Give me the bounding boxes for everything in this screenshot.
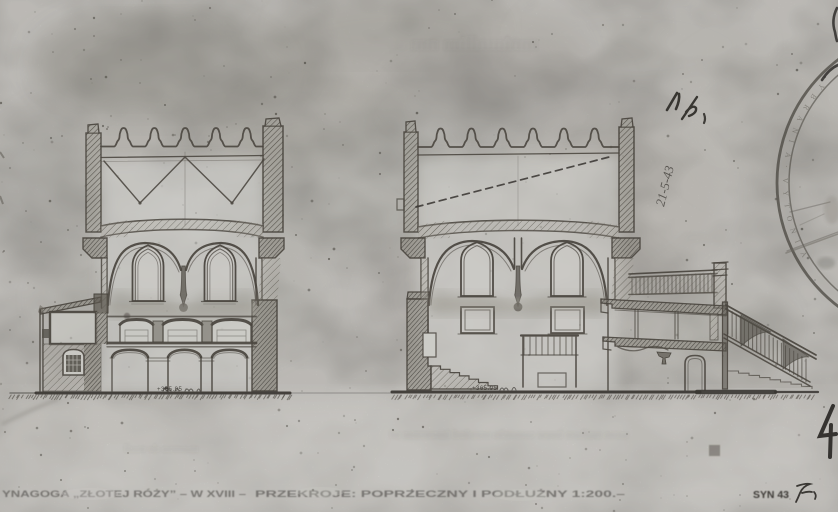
svg-text:SYN 43: SYN 43 xyxy=(753,490,789,501)
svg-text:V: V xyxy=(781,178,790,184)
svg-text:unm nullam imne sommin menlod: unm nullam imne sommin menlod imensum nl xyxy=(389,427,628,441)
svg-text:YNAGOGA „ZŁOTEJ RÓŻY” – W XVII: YNAGOGA „ZŁOTEJ RÓŻY” – W XVIII – xyxy=(2,488,246,500)
svg-text:manum de mnil: manum de mnil xyxy=(124,443,198,455)
svg-text:mnimnllim nm: mnimnllim nm xyxy=(410,33,538,55)
